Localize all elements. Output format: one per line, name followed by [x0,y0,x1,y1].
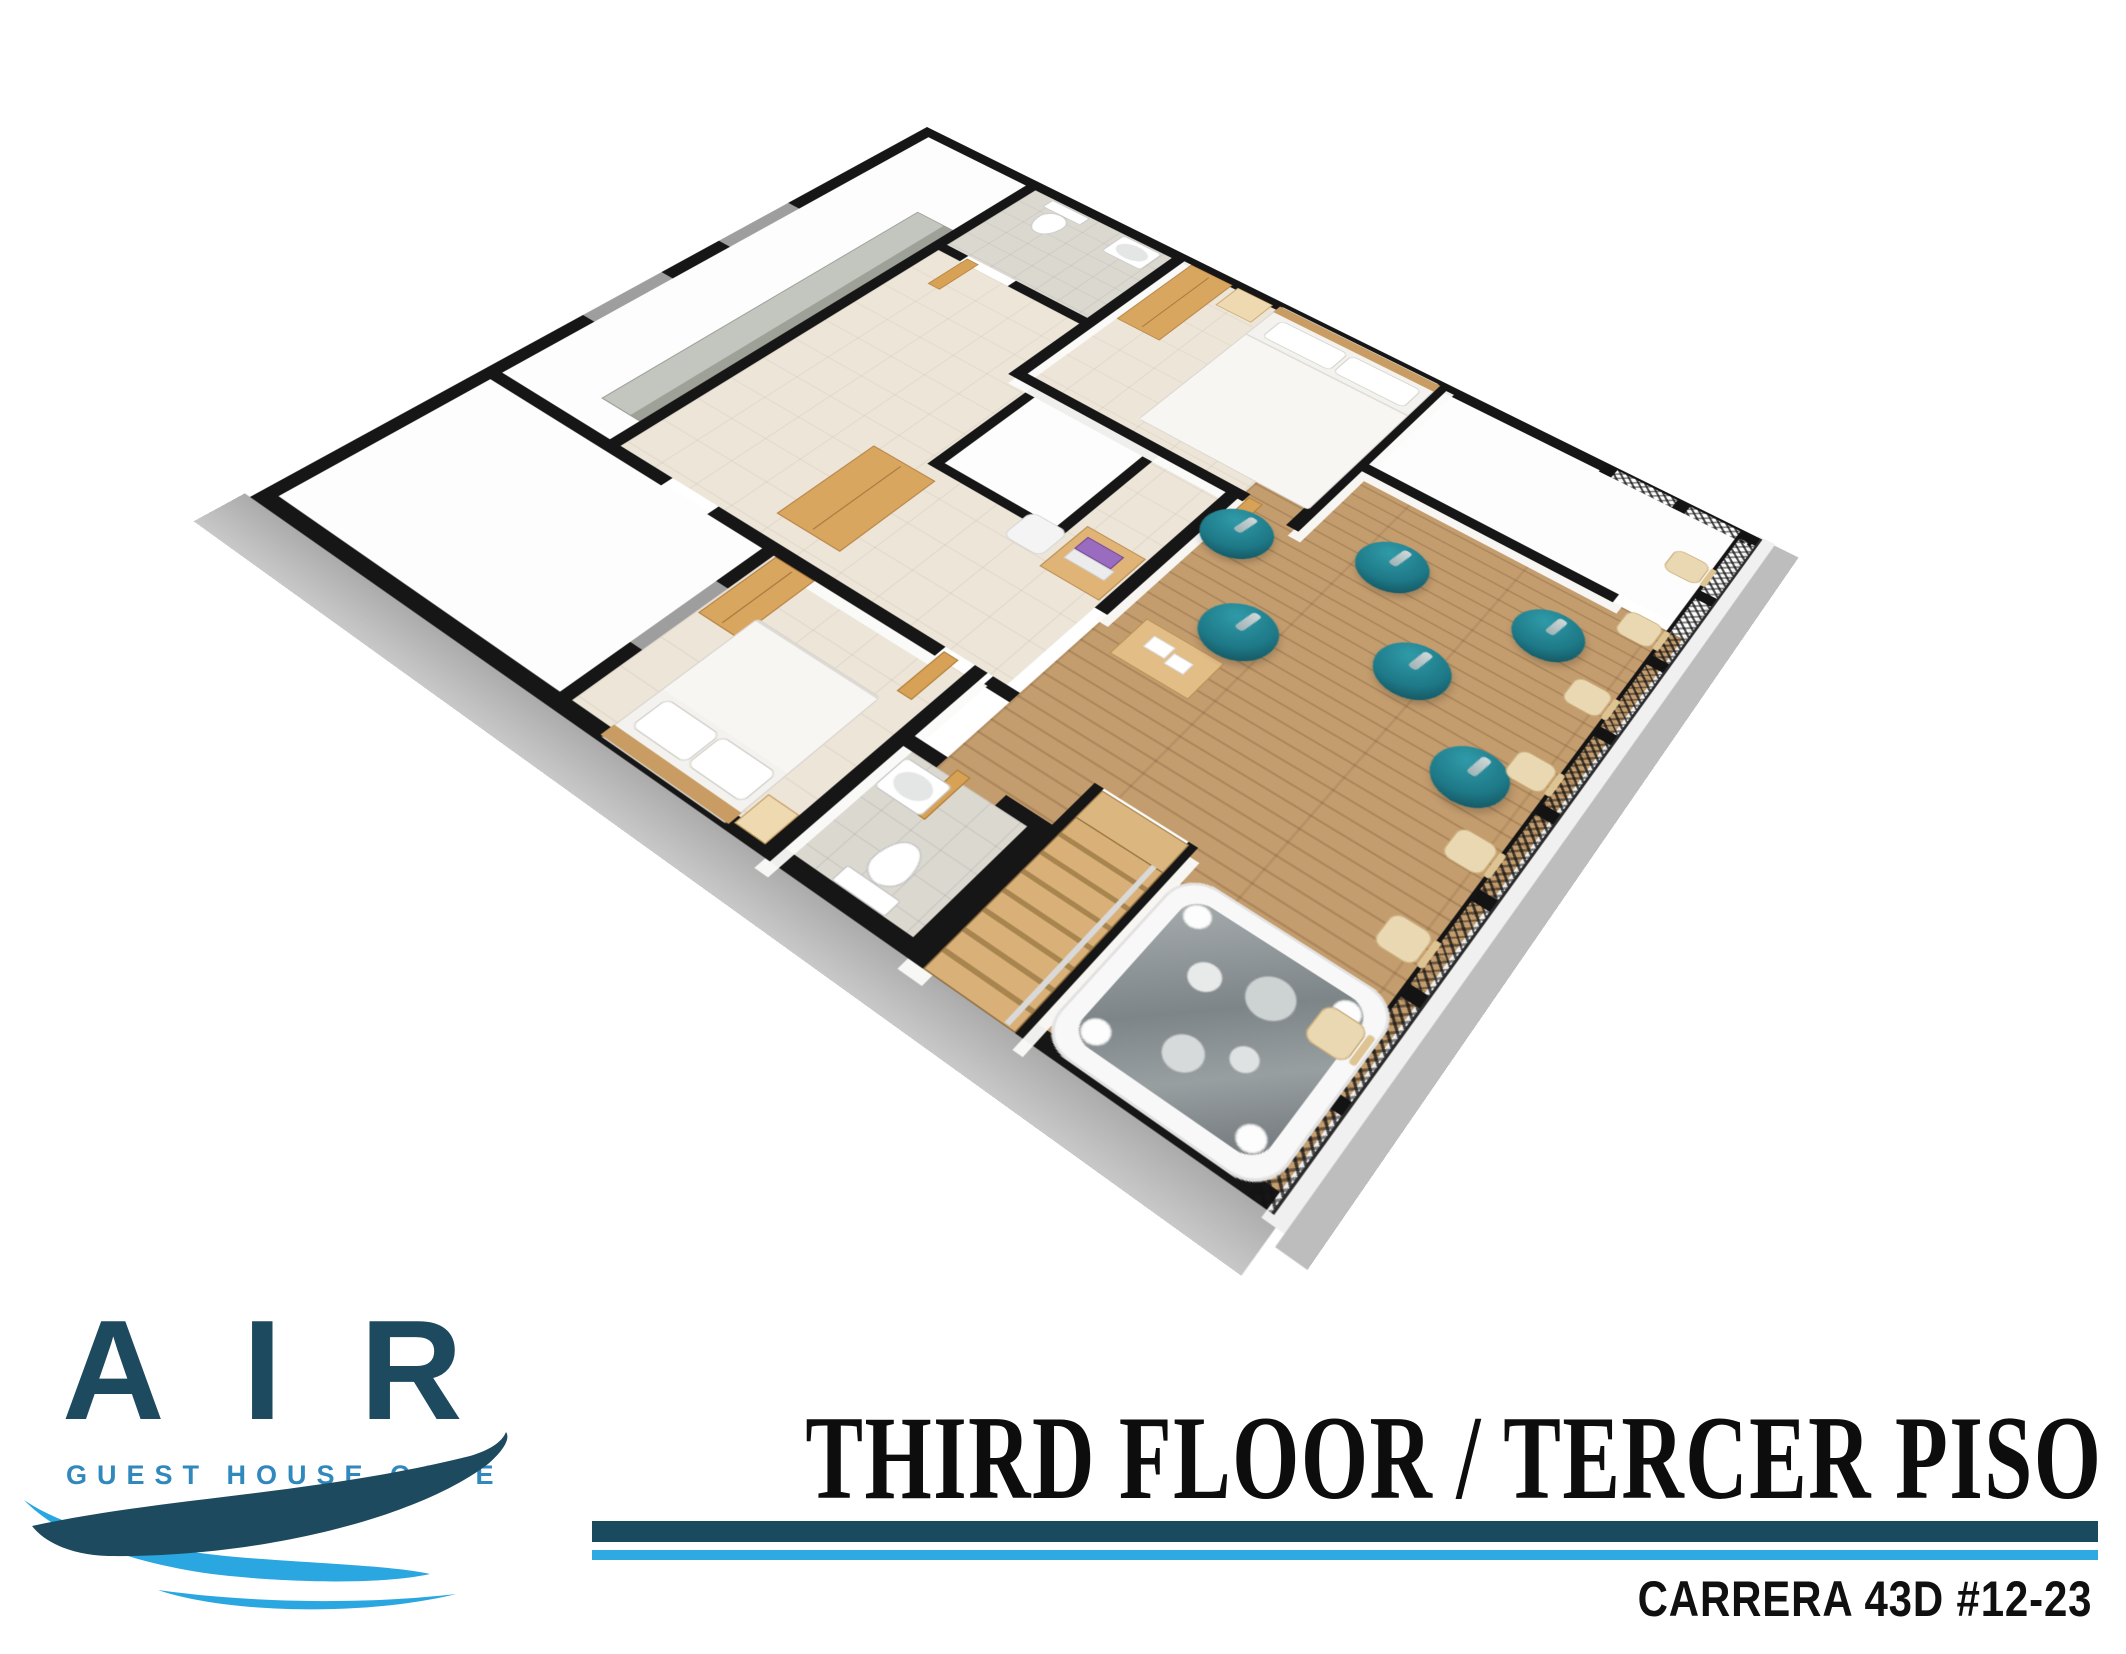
floor-title: THIRD FLOOR / TERCER PISO [805,1398,2102,1518]
address-text: CARRERA 43D #12-23 [1637,1570,2092,1628]
floor-plan-3d [250,127,1757,1210]
title-rule-light [592,1550,2098,1560]
title-rule-dark [592,1521,2098,1542]
page: AIR GUEST HOUSE CAFE THIRD FLOOR / TERCE… [0,0,2126,1654]
logo-wave-icon [18,1406,593,1621]
